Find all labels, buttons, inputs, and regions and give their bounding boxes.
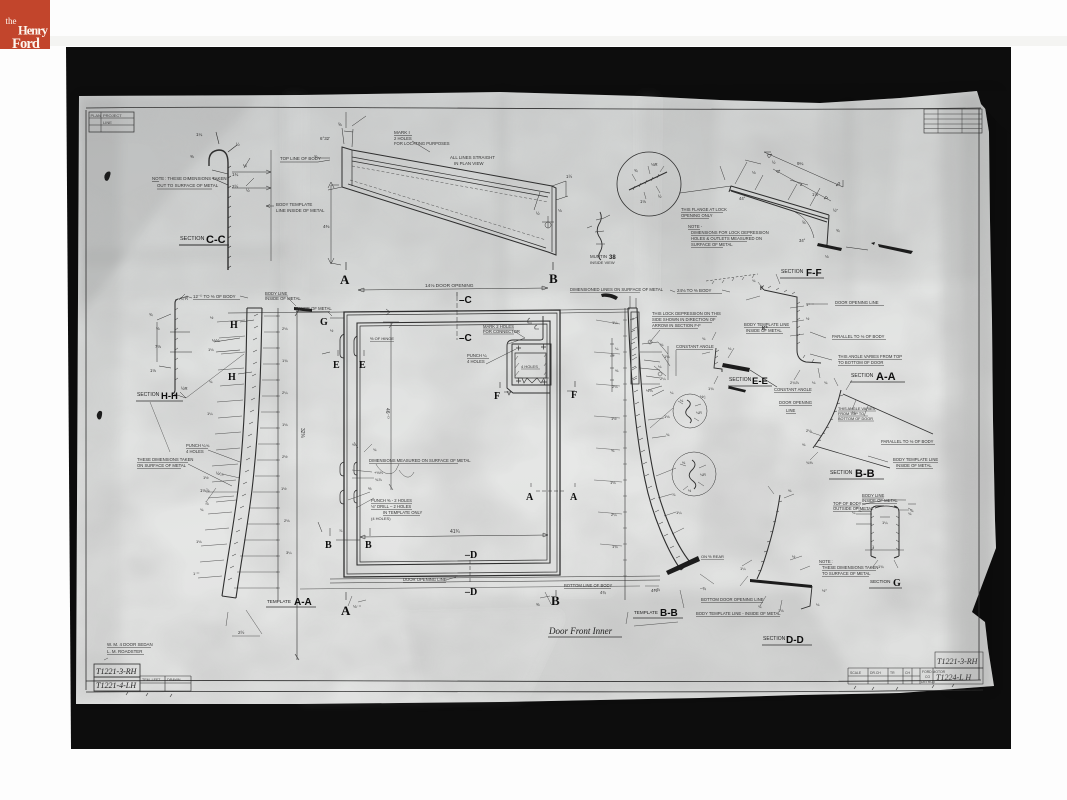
svg-text:1⅛: 1⅛ [640, 199, 646, 204]
svg-text:7⅛: 7⅛ [155, 344, 161, 349]
svg-text:24⅛ TO ℅ BODY: 24⅛ TO ℅ BODY [677, 288, 712, 293]
svg-text:INSIDE OF METAL: INSIDE OF METAL [862, 498, 898, 503]
svg-text:H: H [230, 320, 238, 331]
svg-text:THIS FLANGE AT LOCK: THIS FLANGE AT LOCK [681, 207, 727, 212]
svg-text:⅛R: ⅛R [651, 162, 658, 167]
svg-text:12⁻⁽⁾ TO ℅ OF BODY: 12⁻⁽⁾ TO ℅ OF BODY [193, 294, 236, 299]
svg-text:2⅛: 2⅛ [612, 384, 618, 389]
svg-text:LINE: LINE [103, 120, 112, 125]
svg-text:DOOR OPENING LINE: DOOR OPENING LINE [403, 577, 447, 582]
svg-text:E-E: E-E [752, 376, 768, 387]
svg-text:SIDE SHOWN IN DIRECTION OF: SIDE SHOWN IN DIRECTION OF [652, 317, 716, 322]
svg-text:A: A [341, 603, 351, 618]
svg-text:–D: –D [464, 587, 477, 598]
svg-text:½: ½ [236, 141, 240, 147]
svg-text:¼R: ¼R [700, 473, 706, 477]
svg-text:2⅛: 2⅛ [284, 518, 290, 523]
svg-text:BODY TEMPLATE LINE - INSIDE OF: BODY TEMPLATE LINE - INSIDE OF METAL [696, 611, 781, 616]
svg-text:DOOR OPENING: DOOR OPENING [779, 400, 812, 405]
svg-text:TEMPLATE: TEMPLATE [634, 610, 658, 615]
svg-text:SURFACE OF METAL: SURFACE OF METAL [691, 242, 733, 247]
svg-text:SECTION: SECTION [870, 579, 890, 584]
svg-text:41¾: 41¾ [450, 529, 461, 535]
svg-text:℅ OF HINGE: ℅ OF HINGE [370, 336, 394, 341]
svg-text:PARALLEL TO ℅ OF BODY: PARALLEL TO ℅ OF BODY [832, 334, 885, 339]
svg-text:–C: –C [459, 333, 472, 344]
svg-text:1½: 1½ [203, 475, 209, 480]
svg-text:46⁻⁽⁾: 46⁻⁽⁾ [384, 408, 390, 419]
svg-text:PUNCH ⅜ - 2 HOLES: PUNCH ⅜ - 2 HOLES [371, 498, 412, 503]
svg-text:3¼: 3¼ [286, 550, 292, 555]
svg-text:¾⅝: ¾⅝ [806, 460, 813, 465]
svg-text:DIMENSIONS FOR LOCK DEPRESSION: DIMENSIONS FOR LOCK DEPRESSION [691, 230, 769, 235]
svg-text:TO SURFACE OF METAL: TO SURFACE OF METAL [822, 571, 871, 576]
svg-text:6°32': 6°32' [320, 136, 330, 141]
svg-text:1¼: 1¼ [882, 520, 888, 525]
svg-text:CO: CO [925, 675, 930, 679]
svg-text:¾: ¾ [836, 228, 840, 233]
svg-text:⅛: ⅛ [752, 170, 756, 175]
svg-text:MUNTIN: MUNTIN [590, 254, 607, 259]
svg-text:A: A [570, 492, 578, 503]
svg-text:INSIDE OF METAL: INSIDE OF METAL [265, 296, 301, 301]
svg-text:⅜: ⅜ [536, 602, 540, 607]
svg-text:NOTE -: NOTE - [688, 224, 703, 229]
svg-text:⅝: ⅝ [802, 220, 806, 225]
svg-text:MARK I: MARK I [394, 130, 410, 135]
svg-text:INSIDE OF METAL: INSIDE OF METAL [296, 306, 332, 311]
svg-text:BOTTOM OF DOOR: BOTTOM OF DOOR [838, 417, 873, 421]
svg-text:IN TEMPLATE ONLY: IN TEMPLATE ONLY [383, 510, 423, 515]
svg-text:BODY TEMPLATE LINE: BODY TEMPLATE LINE [744, 322, 789, 327]
svg-text:DIMENSIONS MEASURED ON SURFACE: DIMENSIONS MEASURED ON SURFACE OF METAL [369, 458, 471, 463]
svg-text:B: B [365, 540, 372, 551]
svg-text:1¾: 1¾ [708, 386, 714, 391]
svg-text:⅓⅛: ⅓⅛ [212, 338, 220, 343]
svg-text:1¾: 1¾ [612, 544, 618, 549]
svg-text:⅛: ⅛ [156, 326, 160, 331]
svg-text:1⅛: 1⅛ [812, 192, 818, 197]
svg-text:TEMPLATE: TEMPLATE [267, 599, 291, 604]
svg-text:1⅛: 1⅛ [664, 414, 670, 419]
svg-text:FORD MOTOR: FORD MOTOR [922, 670, 946, 674]
svg-text:B: B [551, 593, 560, 608]
svg-text:A: A [526, 492, 534, 503]
svg-text:W. M. 4 DOOR SEDAN: W. M. 4 DOOR SEDAN [107, 642, 153, 647]
svg-text:H-H: H-H [161, 391, 178, 402]
svg-text:B: B [549, 271, 558, 286]
svg-text:B: B [325, 540, 332, 551]
svg-text:the: the [6, 16, 17, 26]
svg-text:½R: ½R [181, 386, 188, 391]
svg-text:INSIDE VIEW: INSIDE VIEW [590, 260, 615, 265]
svg-text:TO BOTTOM OF DOOR: TO BOTTOM OF DOOR [838, 360, 883, 365]
svg-text:OPENING ONLY: OPENING ONLY [681, 213, 713, 218]
svg-text:1⁼⁻⁾: 1⁼⁻⁾ [806, 302, 813, 307]
svg-text:THIS ANGLE VARIES: THIS ANGLE VARIES [838, 407, 876, 411]
svg-text:¼R: ¼R [696, 411, 702, 415]
svg-text:⅞: ⅞ [205, 501, 209, 506]
svg-text:1⅛: 1⅛ [610, 480, 616, 485]
svg-text:SECTION: SECTION [830, 470, 853, 476]
svg-text:1¼: 1¼ [207, 411, 213, 416]
svg-text:OUT TO SURFACE OF METAL: OUT TO SURFACE OF METAL [157, 183, 219, 188]
svg-text:THESE DIMENSIONS TAKEN: THESE DIMENSIONS TAKEN [822, 565, 878, 570]
svg-text:ON SURFACE OF METAL: ON SURFACE OF METAL [137, 463, 187, 468]
svg-text:NOTE :: NOTE : [819, 559, 833, 564]
svg-text:DOOR OPENING LINE: DOOR OPENING LINE [835, 300, 879, 305]
svg-text:A-A: A-A [294, 597, 312, 608]
svg-text:CH: CH [905, 671, 910, 675]
svg-text:DIMENSIONED LINES ON SURFACE O: DIMENSIONED LINES ON SURFACE OF METAL [570, 287, 664, 292]
svg-text:SECTION: SECTION [137, 392, 160, 398]
svg-text:1½: 1½ [281, 486, 287, 491]
svg-text:SECTION: SECTION [781, 269, 804, 275]
svg-text:¾″R: ¾″R [180, 296, 188, 301]
svg-text:2¾⅞: 2¾⅞ [790, 380, 800, 385]
svg-text:T1221-3-RH: T1221-3-RH [937, 657, 979, 666]
svg-text:LINE: LINE [786, 408, 796, 413]
svg-text:1½: 1½ [611, 416, 617, 421]
svg-text:THIS ANGLE VARIES FROM TOP: THIS ANGLE VARIES FROM TOP [838, 354, 902, 359]
svg-text:ALL LINES STRAIGHT: ALL LINES STRAIGHT [450, 155, 495, 160]
svg-text:A: A [340, 272, 350, 287]
svg-text:SECTION: SECTION [180, 236, 204, 242]
svg-text:THESE DIMENSIONS TAKEN: THESE DIMENSIONS TAKEN [137, 457, 193, 462]
svg-text:⅝: ⅝ [338, 122, 342, 127]
svg-text:CONSTANT ANGLE: CONSTANT ANGLE [774, 387, 812, 392]
svg-text:PUNCH ¼: PUNCH ¼ [467, 353, 487, 358]
svg-text:G: G [893, 578, 901, 589]
svg-text:1¼: 1¼ [196, 132, 203, 137]
svg-text:LINE INSIDE OF METAL: LINE INSIDE OF METAL [276, 208, 325, 213]
svg-text:DETROIT: DETROIT [921, 680, 936, 684]
svg-text:Ford: Ford [12, 36, 40, 52]
svg-text:DR.CH: DR.CH [870, 671, 881, 675]
svg-text:⅜: ⅜ [190, 154, 194, 159]
svg-text:C-C: C-C [206, 234, 226, 246]
svg-text:BOTTOM DOOR OPENING LINE: BOTTOM DOOR OPENING LINE [701, 597, 764, 602]
svg-text:B-B: B-B [660, 608, 678, 619]
svg-text:L. M. ROADSTER: L. M. ROADSTER [107, 649, 142, 654]
svg-text:BOTTOM LINE OF BODY: BOTTOM LINE OF BODY [564, 583, 613, 588]
svg-text:2¼: 2¼ [282, 390, 288, 395]
svg-text:4 HOLES: 4 HOLES [521, 364, 538, 369]
svg-text:1⅛: 1⅛ [208, 347, 214, 352]
svg-text:14⅛ DOOR OPENING: 14⅛ DOOR OPENING [425, 283, 474, 289]
svg-text:A-A: A-A [876, 371, 896, 383]
svg-text:1¼: 1¼ [740, 566, 746, 571]
svg-text:¾: ¾ [634, 168, 638, 173]
svg-text:SECTION: SECTION [851, 373, 874, 379]
svg-text:4⅜: 4⅜ [323, 224, 330, 229]
svg-text:2½: 2½ [238, 629, 245, 635]
svg-text:2¼: 2¼ [611, 512, 617, 517]
svg-text:B-B: B-B [855, 468, 875, 480]
svg-text:½⁄₂₃: ½⁄₂₃ [216, 471, 224, 476]
svg-text:¼: ¼ [243, 163, 247, 168]
svg-text:IN PLAN VIEW: IN PLAN VIEW [454, 161, 484, 166]
svg-text:1¾: 1¾ [232, 172, 239, 177]
svg-text:1⅛: 1⅛ [150, 368, 156, 373]
svg-text:DRAWN: DRAWN [167, 678, 181, 682]
svg-text:4 HOLES: 4 HOLES [467, 359, 485, 364]
svg-text:E: E [333, 360, 340, 371]
svg-text:2½: 2½ [282, 454, 288, 459]
svg-text:SECTION: SECTION [763, 636, 786, 642]
svg-text:ARROW IN SECTION F-F: ARROW IN SECTION F-F [652, 323, 701, 328]
svg-text:2⅛: 2⅛ [282, 326, 288, 331]
svg-text:–¾: –¾ [700, 586, 706, 591]
svg-text:(4 HOLES): (4 HOLES) [371, 516, 391, 521]
svg-text:NOTE : THESE DIMENSIONS TAKEN: NOTE : THESE DIMENSIONS TAKEN [152, 176, 227, 181]
svg-text:¾: ¾ [314, 154, 318, 159]
svg-text:1⅛: 1⅛ [282, 422, 288, 427]
svg-text:INSIDE OF METAL: INSIDE OF METAL [896, 463, 932, 468]
svg-text:44°: 44° [739, 196, 746, 201]
svg-text:¾: ¾ [149, 312, 153, 317]
svg-text:4⅜: 4⅜ [651, 588, 658, 593]
svg-text:Door Front Inner: Door Front Inner [548, 626, 613, 636]
svg-text:½: ½ [246, 187, 250, 193]
svg-text:BODY TEMPLATE LINE: BODY TEMPLATE LINE [893, 457, 938, 462]
svg-text:½⅛: ½⅛ [646, 388, 653, 393]
svg-text:2¼: 2¼ [660, 376, 666, 381]
svg-text:BODY TEMPLATE: BODY TEMPLATE [276, 202, 312, 207]
svg-text:1¾: 1¾ [282, 358, 288, 363]
svg-text:4¾: 4¾ [600, 590, 606, 595]
svg-text:½″: ½″ [833, 208, 838, 213]
svg-text:–C: –C [459, 295, 472, 306]
svg-text:PROJECT: PROJECT [103, 113, 122, 118]
svg-text:T1224-L H: T1224-L H [936, 673, 972, 682]
svg-text:PLAN: PLAN [91, 113, 102, 118]
svg-text:34°: 34° [799, 238, 806, 243]
svg-text:PARALLEL TO ℅ OF BODY: PARALLEL TO ℅ OF BODY [881, 439, 934, 444]
svg-text:⅛: ⅛ [825, 254, 829, 259]
svg-text:F: F [494, 391, 500, 402]
svg-text:1⅛⅞: 1⅛⅞ [200, 488, 210, 493]
svg-text:+⅛⅓: +⅛⅓ [374, 470, 384, 475]
svg-text:SCALE: SCALE [850, 671, 862, 675]
svg-text:FOR LOCATING PURPOSES: FOR LOCATING PURPOSES [394, 141, 450, 146]
svg-text:¾⅞: ¾⅞ [375, 477, 382, 482]
svg-text:1¼: 1¼ [612, 320, 618, 325]
svg-text:F-F: F-F [806, 268, 822, 279]
svg-text:K: K [760, 286, 765, 292]
svg-text:G: G [320, 317, 328, 328]
svg-text:D-D: D-D [786, 635, 804, 646]
svg-text:TEM. LEFT: TEM. LEFT [142, 678, 161, 682]
svg-text:1⁻⁽⁾: 1⁻⁽⁾ [193, 571, 199, 576]
svg-text:INSIDE OF METAL: INSIDE OF METAL [746, 328, 782, 333]
svg-text:⅛: ⅛ [558, 208, 562, 213]
svg-text:SECTION: SECTION [729, 377, 752, 383]
svg-text:1⅛: 1⅛ [196, 539, 202, 544]
svg-text:9¼: 9¼ [797, 161, 804, 166]
svg-text:1⅛: 1⅛ [664, 354, 670, 359]
svg-text:32⅜: 32⅜ [299, 428, 305, 439]
svg-text:FROM TOP TO: FROM TOP TO [838, 412, 864, 416]
svg-text:TR: TR [890, 671, 895, 675]
svg-text:H: H [228, 372, 236, 383]
svg-text:1½: 1½ [566, 174, 572, 179]
svg-text:F: F [571, 390, 577, 401]
svg-text:4 HOLES: 4 HOLES [186, 449, 204, 454]
svg-text:⅛⁻⁽⁾: ⅛⁻⁽⁾ [353, 604, 361, 609]
svg-text:½: ½ [772, 160, 776, 165]
svg-text:2¼: 2¼ [806, 428, 812, 433]
svg-text:T1221-3-RH: T1221-3-RH [96, 667, 138, 676]
svg-text:E: E [359, 360, 366, 371]
svg-text:–D: –D [464, 550, 477, 561]
svg-text:1¼: 1¼ [676, 510, 682, 515]
svg-text:℅: ℅ [368, 486, 372, 491]
svg-text:½: ½ [658, 194, 662, 199]
svg-text:CONSTANT ANGLE: CONSTANT ANGLE [676, 344, 714, 349]
svg-text:⅛″ DRILL – 2 HOLES: ⅛″ DRILL – 2 HOLES [371, 504, 411, 509]
svg-text:½: ½ [536, 211, 540, 216]
svg-text:PUNCH ¼: PUNCH ¼ [186, 443, 206, 448]
svg-text:THIS LOCK DEPRESSION ON THIS: THIS LOCK DEPRESSION ON THIS [652, 311, 721, 316]
svg-text:T1221-4-LH: T1221-4-LH [96, 681, 137, 690]
svg-text:1¾: 1¾ [878, 564, 884, 569]
svg-text:½°: ½° [822, 588, 827, 593]
svg-text:HOLES & OUTLETS MEASURED ON: HOLES & OUTLETS MEASURED ON [691, 236, 762, 241]
svg-text:ON ℅ REAR: ON ℅ REAR [701, 554, 724, 559]
